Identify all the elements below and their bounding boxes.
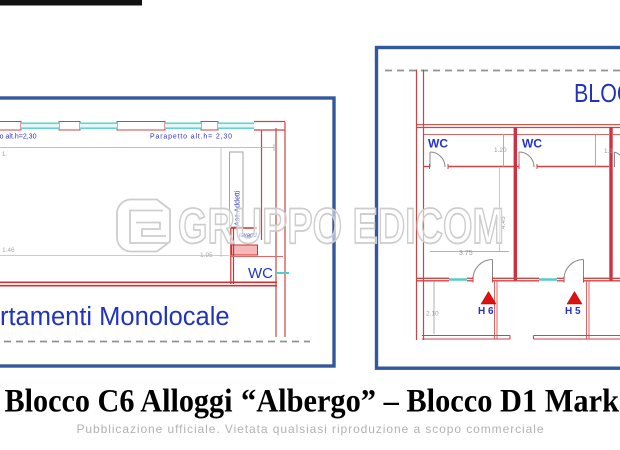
svg-text:BLOCCO D1: BLOCCO D1 [574,78,620,108]
svg-text:Blocco C6 Alloggi: Blocco C6 Alloggi [5,384,233,420]
svg-text:Appartamenti Monolocale: Appartamenti Monolocale [0,303,230,331]
svg-text:1.2: 1.2 [604,148,613,155]
svg-text:H 5: H 5 [565,306,581,317]
svg-text:H 6: H 6 [478,306,494,317]
svg-text:1.: 1. [2,152,7,158]
svg-text:2.10: 2.10 [426,311,439,318]
svg-text:WC: WC [522,137,542,151]
svg-text:WC: WC [428,137,448,151]
svg-text:Pubblicazione ufficiale. Vieta: Pubblicazione ufficiale. Vietata qualsia… [77,422,544,436]
svg-text:1.20: 1.20 [494,147,507,154]
svg-text:petto alt.h=2,30: petto alt.h=2,30 [0,134,37,141]
svg-text:“Albergo” – Blocco D1 Mark: “Albergo” – Blocco D1 Mark [241,384,620,420]
svg-text:GRUPPO EDICOM: GRUPPO EDICOM [178,198,504,254]
svg-text:Parapetto alt.h= 2,30: Parapetto alt.h= 2,30 [150,134,232,141]
svg-text:1.46: 1.46 [2,247,15,254]
svg-text:WC: WC [248,265,273,282]
